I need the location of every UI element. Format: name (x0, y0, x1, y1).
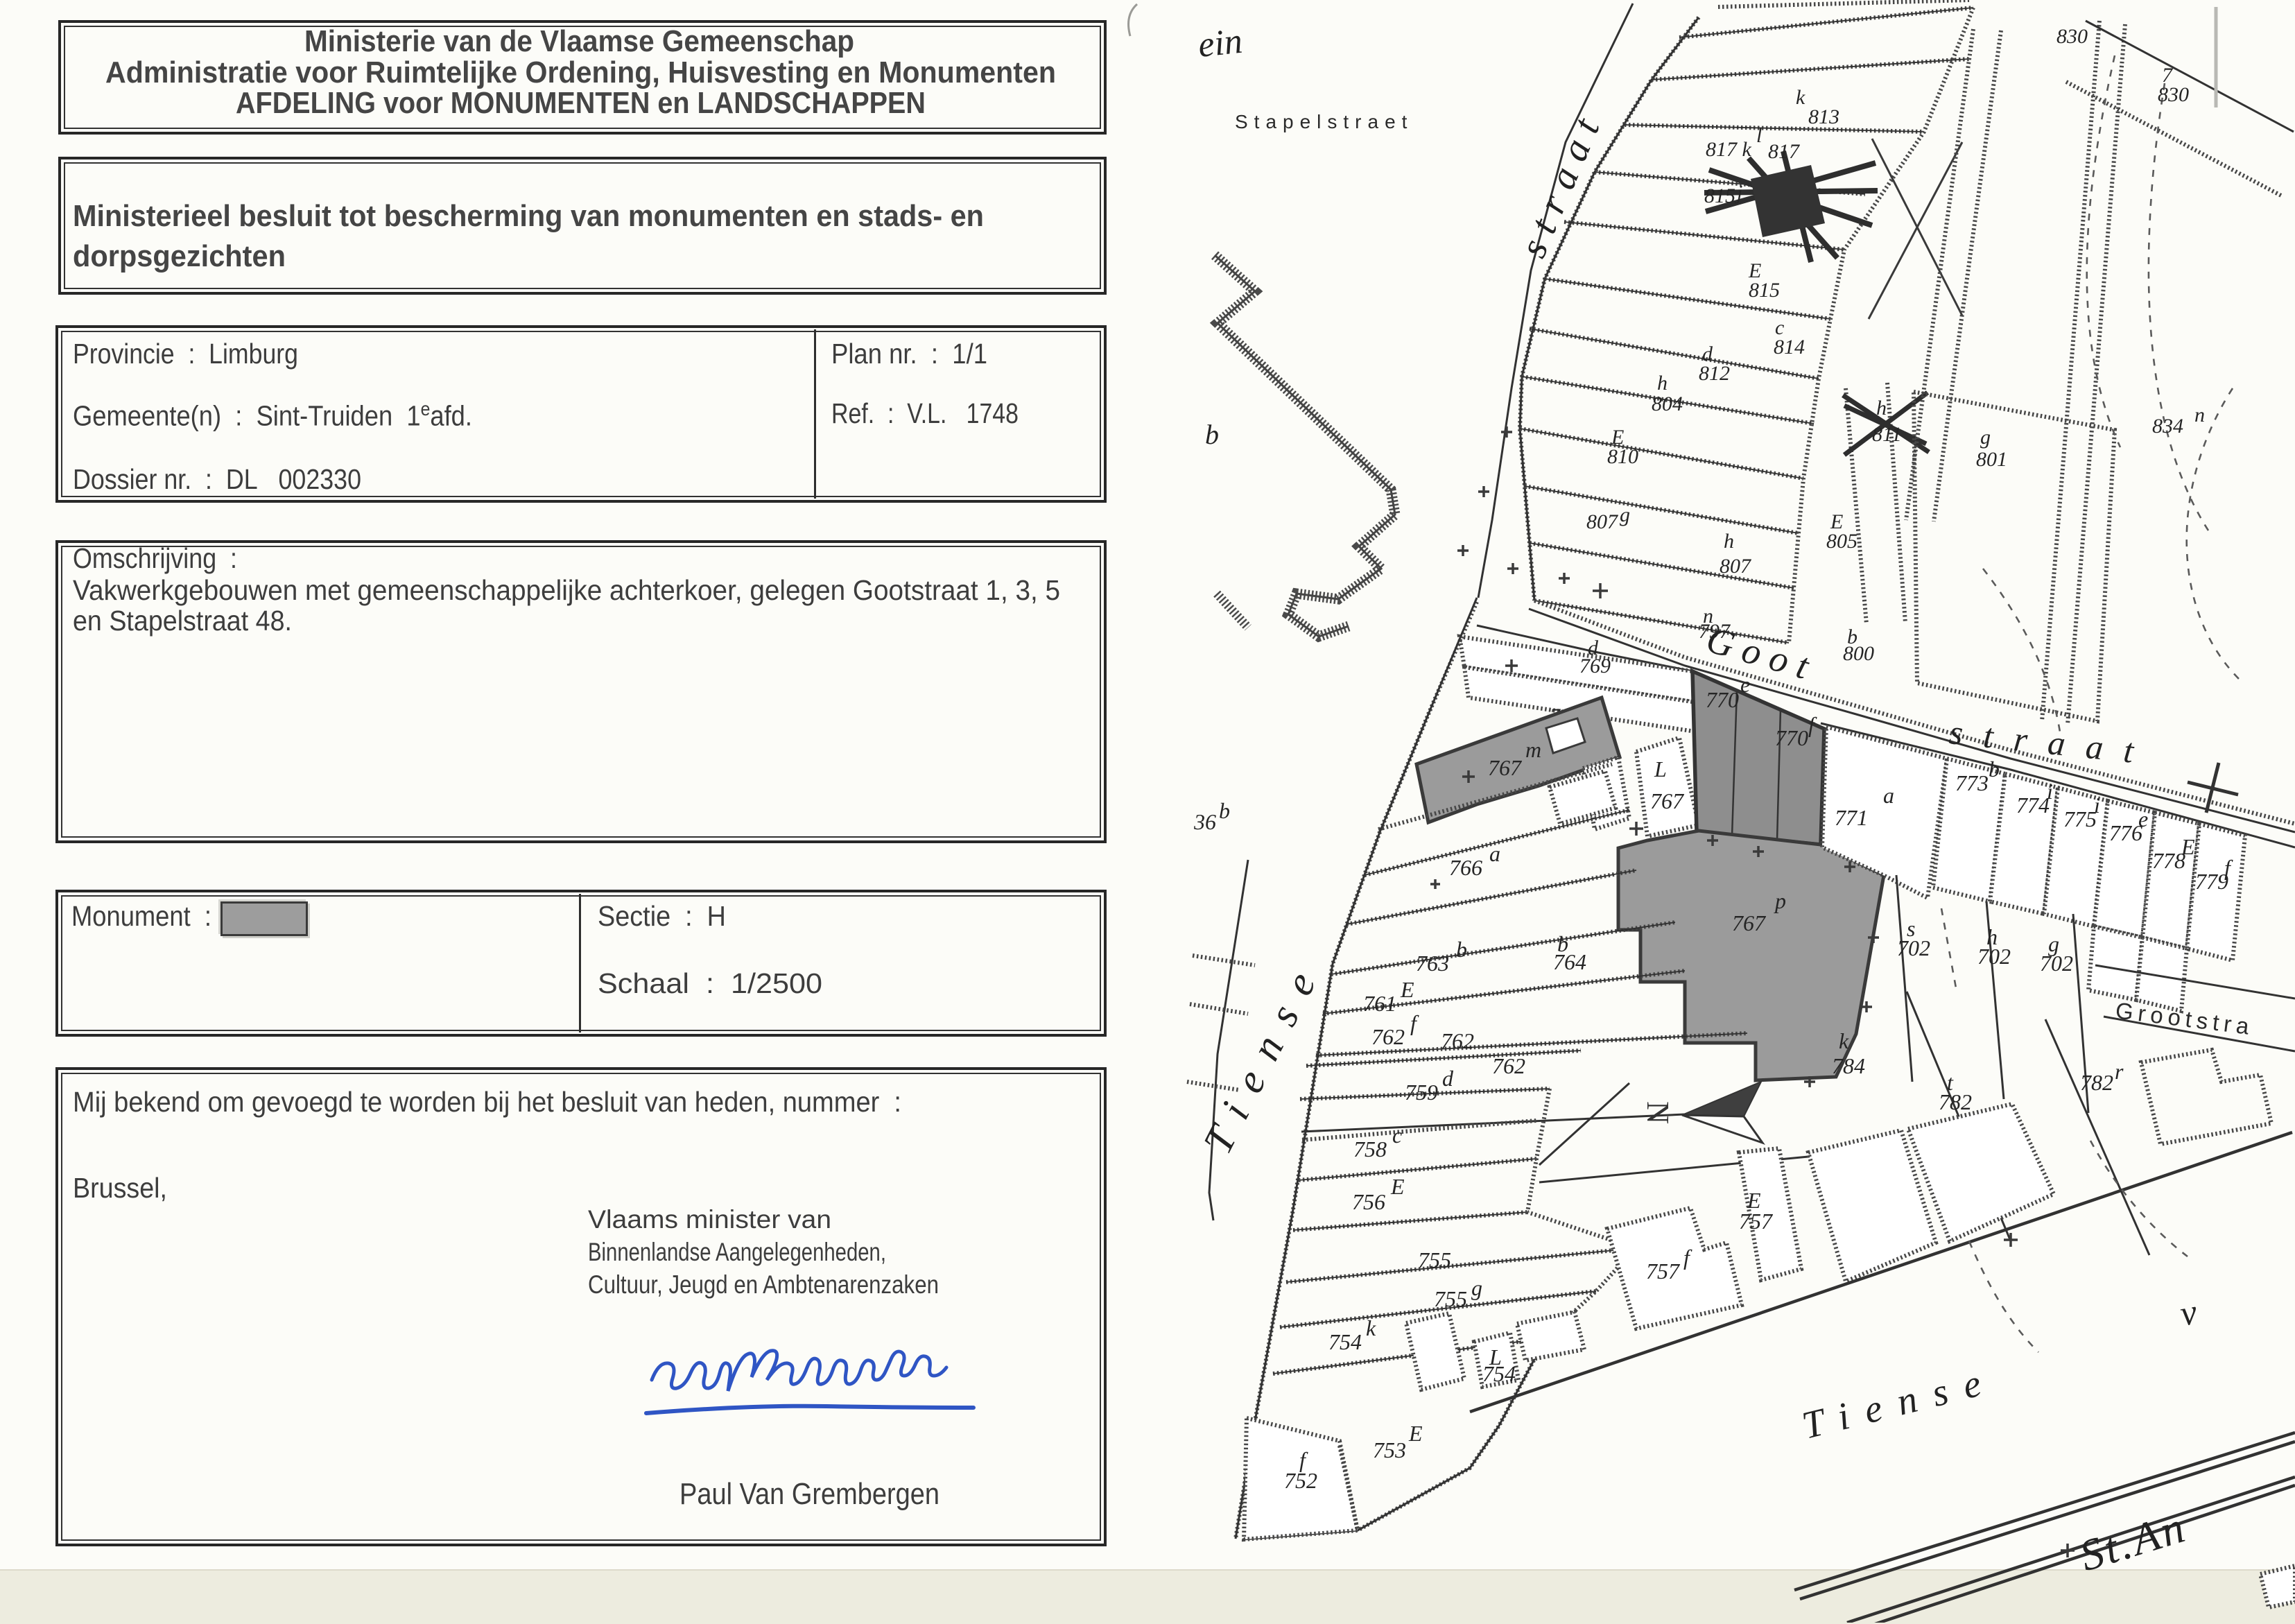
svg-text:817: 817 (1768, 140, 1801, 163)
svg-text:702: 702 (2040, 951, 2073, 976)
svg-text:straat: straat (1512, 102, 1613, 264)
svg-text:767: 767 (1732, 910, 1767, 935)
svg-text:b: b (1456, 937, 1467, 962)
svg-text:756: 756 (1352, 1189, 1385, 1214)
svg-text:b: b (1219, 798, 1230, 823)
svg-text:a: a (1883, 783, 1894, 808)
svg-text:g: g (1471, 1275, 1482, 1300)
svg-text:l: l (1756, 124, 1762, 147)
svg-text:Grootstra: Grootstra (2114, 997, 2255, 1039)
svg-text:778: 778 (2152, 848, 2185, 873)
svg-text:h: h (1657, 372, 1668, 395)
svg-text:775: 775 (2063, 806, 2097, 831)
svg-text:805: 805 (1826, 530, 1857, 553)
svg-text:d: d (1442, 1066, 1454, 1091)
svg-text:E: E (2181, 834, 2195, 859)
svg-text:761: 761 (1363, 991, 1396, 1016)
svg-text:e: e (1740, 672, 1750, 697)
svg-text:769: 769 (1579, 655, 1611, 677)
svg-text:763: 763 (1416, 951, 1449, 976)
svg-text:782: 782 (1939, 1089, 1972, 1114)
svg-text:L: L (1654, 757, 1667, 781)
svg-text:b: b (1205, 419, 1219, 450)
svg-text:k: k (1366, 1315, 1376, 1340)
svg-text:813: 813 (1808, 105, 1839, 128)
svg-text:p: p (1774, 888, 1786, 913)
svg-text:759: 759 (1405, 1080, 1438, 1105)
svg-text:784: 784 (1832, 1053, 1865, 1078)
svg-text:h: h (1724, 530, 1734, 553)
svg-text:straat: straat (1948, 712, 2156, 772)
svg-text:ein: ein (1196, 21, 1244, 65)
svg-text:753: 753 (1373, 1437, 1406, 1462)
svg-text:830: 830 (2056, 25, 2088, 48)
svg-text:702: 702 (1897, 935, 1930, 960)
svg-text:754: 754 (1328, 1329, 1362, 1354)
svg-text:757: 757 (1646, 1259, 1681, 1284)
svg-text:E: E (1400, 977, 1414, 1002)
svg-text:g: g (1620, 503, 1630, 526)
svg-text:Stapelstraet: Stapelstraet (1235, 111, 1413, 132)
svg-text:e: e (2138, 806, 2148, 831)
svg-text:702: 702 (1977, 944, 2011, 969)
svg-text:762: 762 (1492, 1053, 1525, 1078)
svg-text:807: 807 (1720, 555, 1752, 578)
svg-text:758: 758 (1353, 1137, 1387, 1161)
svg-text:834: 834 (2152, 415, 2183, 438)
svg-text:804: 804 (1652, 392, 1683, 415)
svg-text:815: 815 (1749, 279, 1780, 302)
svg-text:g: g (1980, 426, 1991, 449)
svg-text:b: b (1989, 757, 2000, 781)
svg-text:c: c (1392, 1123, 1402, 1148)
svg-text:755: 755 (1434, 1286, 1467, 1311)
svg-text:815: 815 (1704, 184, 1735, 207)
svg-text:k: k (1796, 86, 1805, 109)
svg-text:a: a (1489, 841, 1500, 866)
svg-text:St.An: St.An (2074, 1502, 2192, 1581)
svg-text:810: 810 (1607, 445, 1638, 468)
svg-text:766: 766 (1449, 855, 1482, 880)
svg-text:762: 762 (1371, 1024, 1405, 1049)
svg-text:770: 770 (1706, 687, 1739, 712)
svg-text:i: i (2094, 793, 2100, 818)
svg-text:E: E (1390, 1174, 1405, 1199)
svg-text:800: 800 (1843, 642, 1874, 665)
svg-text:i: i (2047, 779, 2053, 804)
svg-text:807: 807 (1586, 510, 1619, 533)
svg-text:Tiense: Tiense (1195, 949, 1333, 1161)
svg-text:770: 770 (1775, 725, 1808, 750)
svg-text:764: 764 (1553, 949, 1586, 974)
svg-text:k: k (1839, 1028, 1849, 1053)
svg-text:773: 773 (1955, 770, 1989, 795)
svg-text:755: 755 (1418, 1247, 1451, 1272)
svg-text:E: E (1408, 1421, 1423, 1446)
svg-text:v: v (2177, 1293, 2201, 1334)
svg-text:h: h (1876, 397, 1887, 420)
svg-text:782: 782 (2080, 1070, 2113, 1095)
svg-text:779: 779 (2195, 869, 2228, 894)
svg-text:762: 762 (1441, 1028, 1474, 1053)
svg-text:754: 754 (1482, 1361, 1516, 1386)
svg-text:n: n (2194, 404, 2205, 426)
svg-text:774: 774 (2016, 793, 2050, 818)
svg-text:817 k: 817 k (1706, 138, 1752, 161)
svg-text:r: r (2115, 1059, 2124, 1084)
svg-text:814: 814 (1774, 336, 1805, 359)
svg-text:f: f (1410, 1010, 1419, 1035)
svg-text:Tiense: Tiense (1798, 1358, 2002, 1448)
svg-text:801: 801 (1976, 448, 2007, 471)
svg-text:812: 812 (1699, 362, 1730, 385)
svg-text:767: 767 (1650, 788, 1685, 813)
svg-text:N: N (1640, 1101, 1676, 1124)
svg-text:771: 771 (1835, 805, 1868, 830)
svg-text:36: 36 (1193, 809, 1216, 834)
svg-text:776: 776 (2109, 820, 2142, 845)
svg-text:811: 811 (1872, 423, 1902, 446)
svg-text:757: 757 (1739, 1209, 1774, 1234)
svg-text:m: m (1525, 737, 1541, 762)
svg-text:830: 830 (2158, 83, 2189, 106)
svg-text:767: 767 (1488, 755, 1523, 780)
